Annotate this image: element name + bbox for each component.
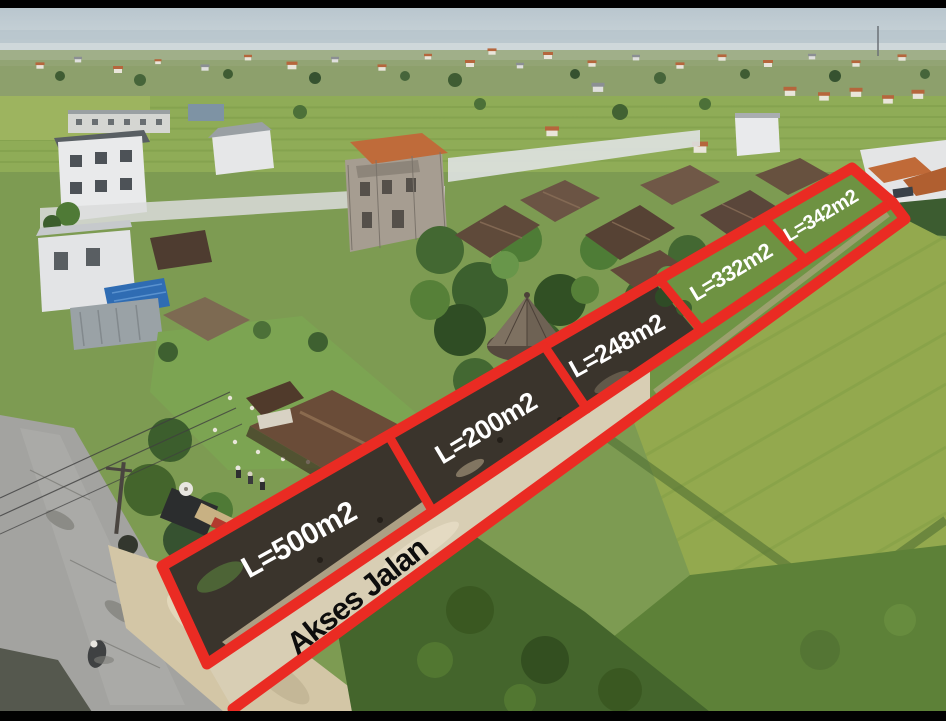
letterbox-bottom xyxy=(0,711,946,721)
white-gable-house xyxy=(212,130,274,175)
sea-horizon xyxy=(0,30,946,43)
apartment-block xyxy=(68,114,170,133)
blue-shed xyxy=(188,104,224,121)
white-cube-house xyxy=(735,115,780,156)
aerial-drone-photo: L=500m2 L=200m2 L=248m2 L=332m2 L=342m2 … xyxy=(0,0,946,721)
letterbox-top xyxy=(0,0,946,8)
helmet xyxy=(91,641,98,648)
